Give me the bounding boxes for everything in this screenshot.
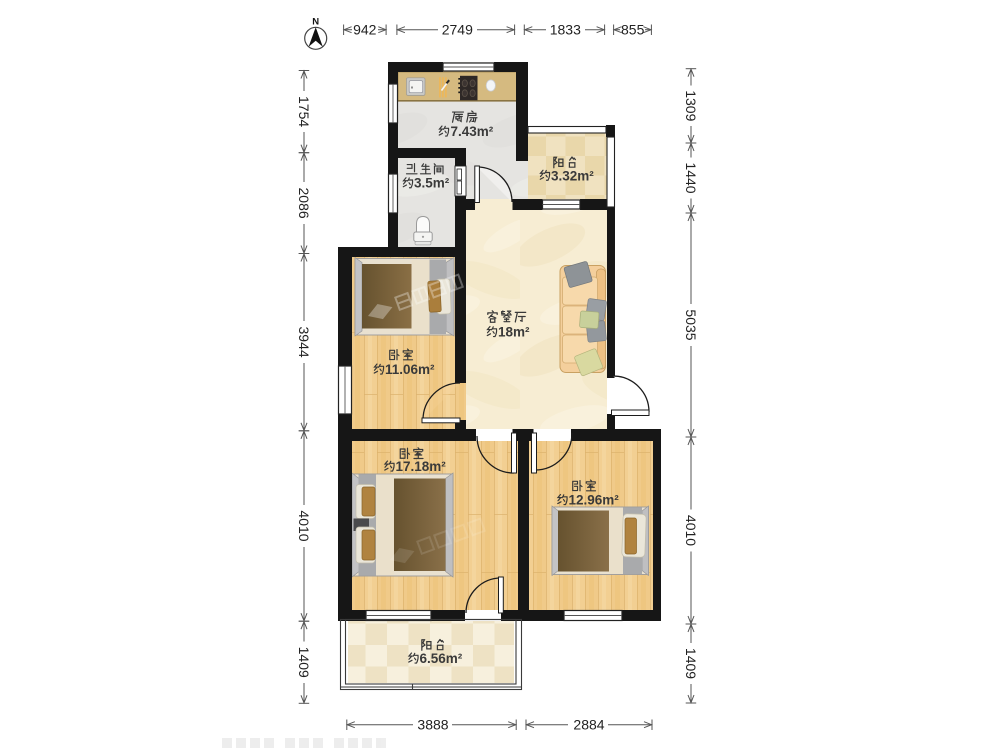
svg-text:N: N	[312, 17, 319, 28]
svg-text:3.5m²: 3.5m²	[414, 176, 450, 191]
svg-text:1440: 1440	[683, 162, 699, 193]
svg-text:1833: 1833	[550, 21, 581, 37]
svg-text:3888: 3888	[417, 716, 448, 732]
svg-text:3.32m²: 3.32m²	[551, 168, 594, 183]
svg-text:7.43m²: 7.43m²	[451, 124, 494, 139]
svg-text:1409: 1409	[296, 647, 312, 678]
svg-text:1409: 1409	[683, 648, 699, 679]
svg-text:2749: 2749	[442, 21, 473, 37]
svg-text:1754: 1754	[296, 96, 312, 127]
svg-text:2086: 2086	[296, 188, 312, 219]
svg-text:942: 942	[353, 21, 377, 37]
svg-text:4010: 4010	[296, 510, 312, 541]
svg-text:6.56m²: 6.56m²	[420, 651, 463, 666]
svg-text:5035: 5035	[683, 309, 699, 340]
svg-text:4010: 4010	[683, 515, 699, 546]
svg-text:12.96m²: 12.96m²	[569, 493, 620, 508]
svg-text:17.18m²: 17.18m²	[396, 459, 447, 474]
svg-text:3944: 3944	[296, 327, 312, 358]
svg-text:855: 855	[621, 21, 645, 37]
svg-text:2884: 2884	[573, 716, 604, 732]
svg-text:1309: 1309	[683, 90, 699, 121]
svg-text:11.06m²: 11.06m²	[385, 362, 435, 377]
svg-text:18m²: 18m²	[498, 325, 530, 340]
